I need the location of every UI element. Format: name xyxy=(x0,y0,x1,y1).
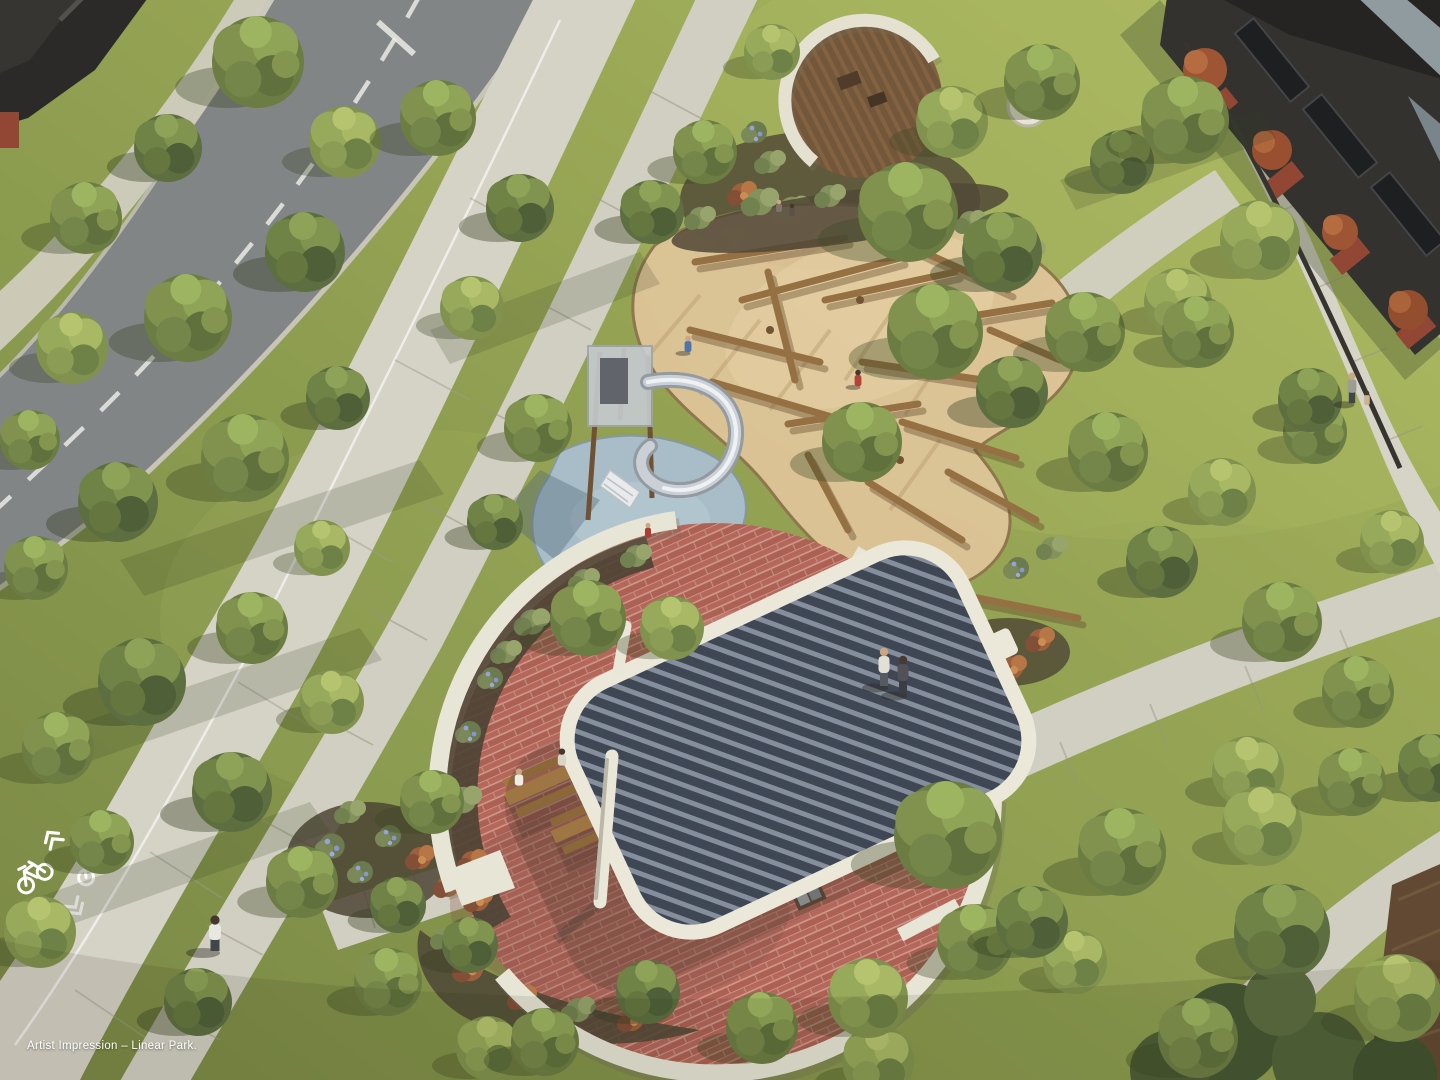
park-aerial-scene xyxy=(0,0,1440,1080)
lighting-overlay xyxy=(0,0,1440,1080)
caption-text: Artist Impression – Linear Park. xyxy=(27,1040,197,1052)
artist-impression-render: Artist Impression – Linear Park. xyxy=(0,0,1440,1080)
